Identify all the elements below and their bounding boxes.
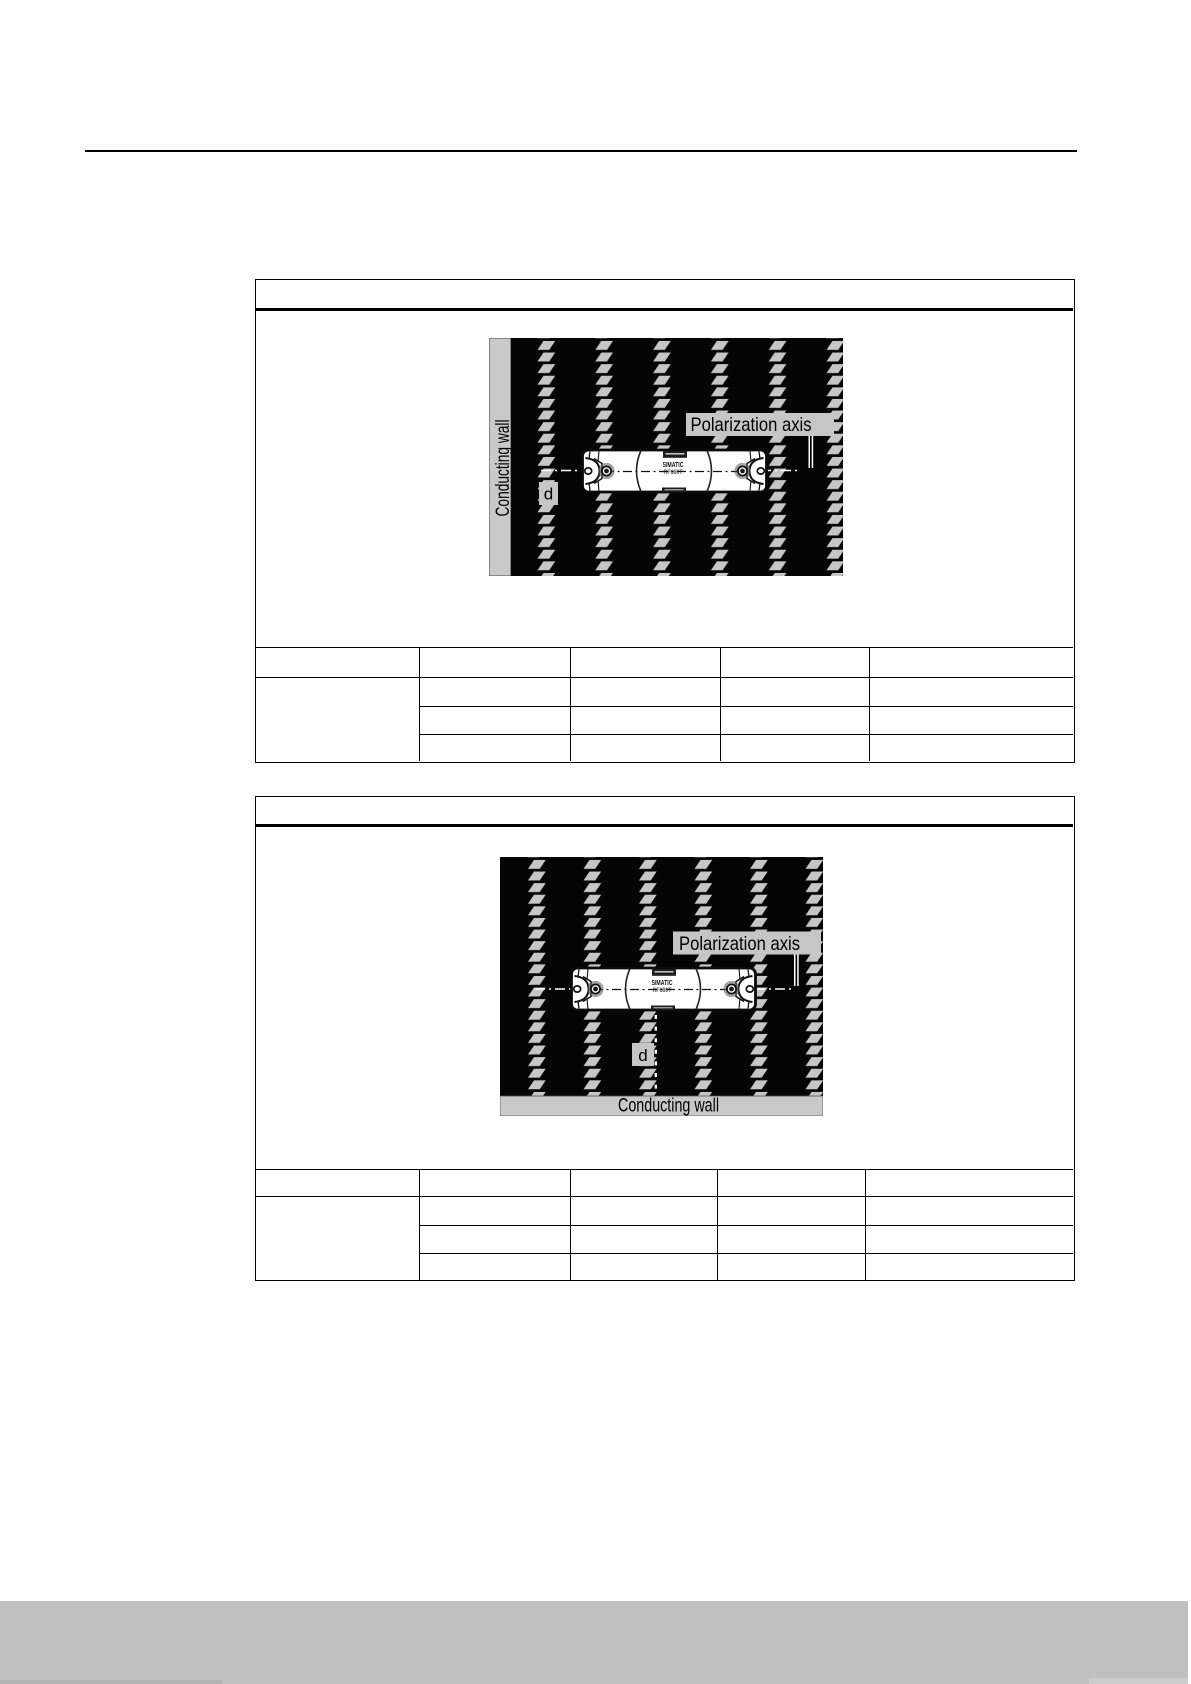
- svg-text:Polarization axis: Polarization axis: [691, 414, 812, 436]
- svg-text:d: d: [544, 485, 553, 504]
- svg-text:Conducting wall: Conducting wall: [493, 420, 514, 517]
- svg-text:Polarization axis: Polarization axis: [679, 933, 800, 955]
- svg-text:d: d: [638, 1046, 647, 1065]
- svg-text:Conducting wall: Conducting wall: [618, 1096, 719, 1117]
